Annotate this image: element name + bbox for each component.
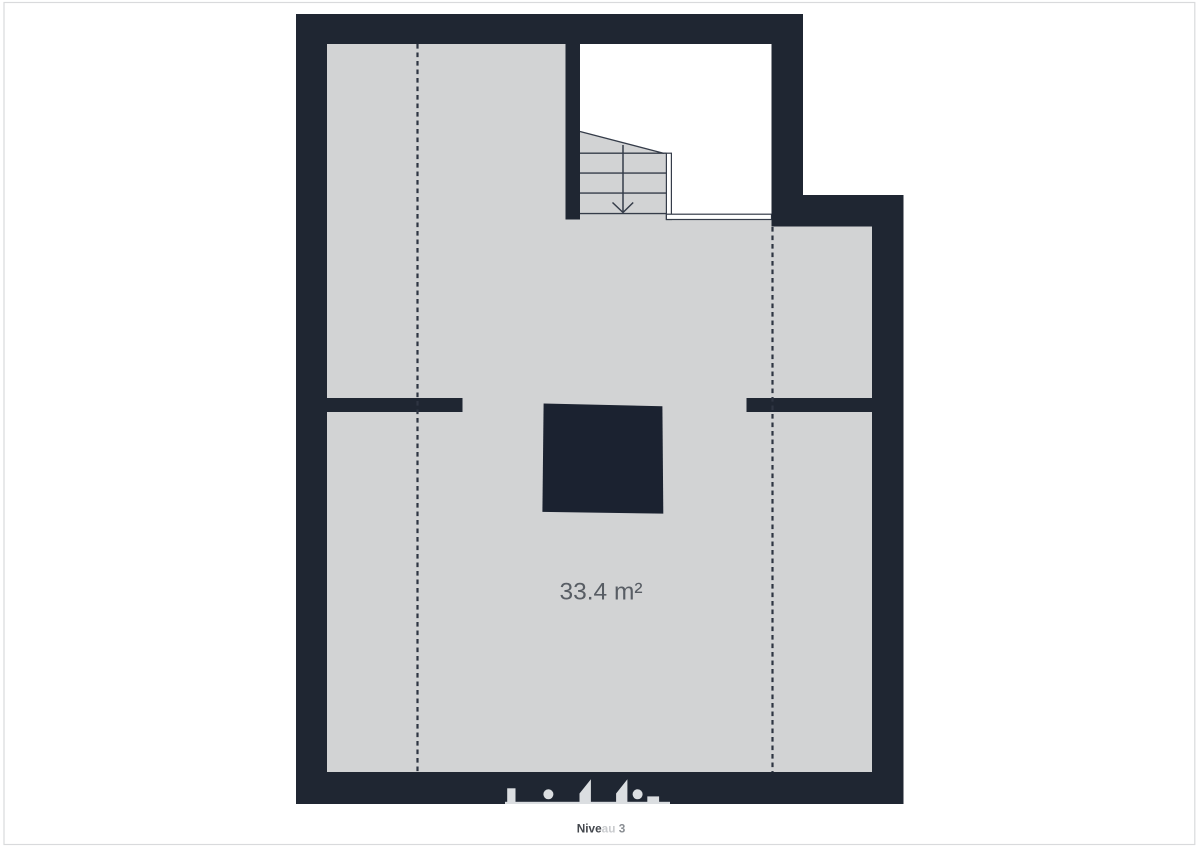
svg-text:33.4 m²: 33.4 m² <box>559 579 642 606</box>
svg-text:Niveau 3: Niveau 3 <box>577 822 626 836</box>
